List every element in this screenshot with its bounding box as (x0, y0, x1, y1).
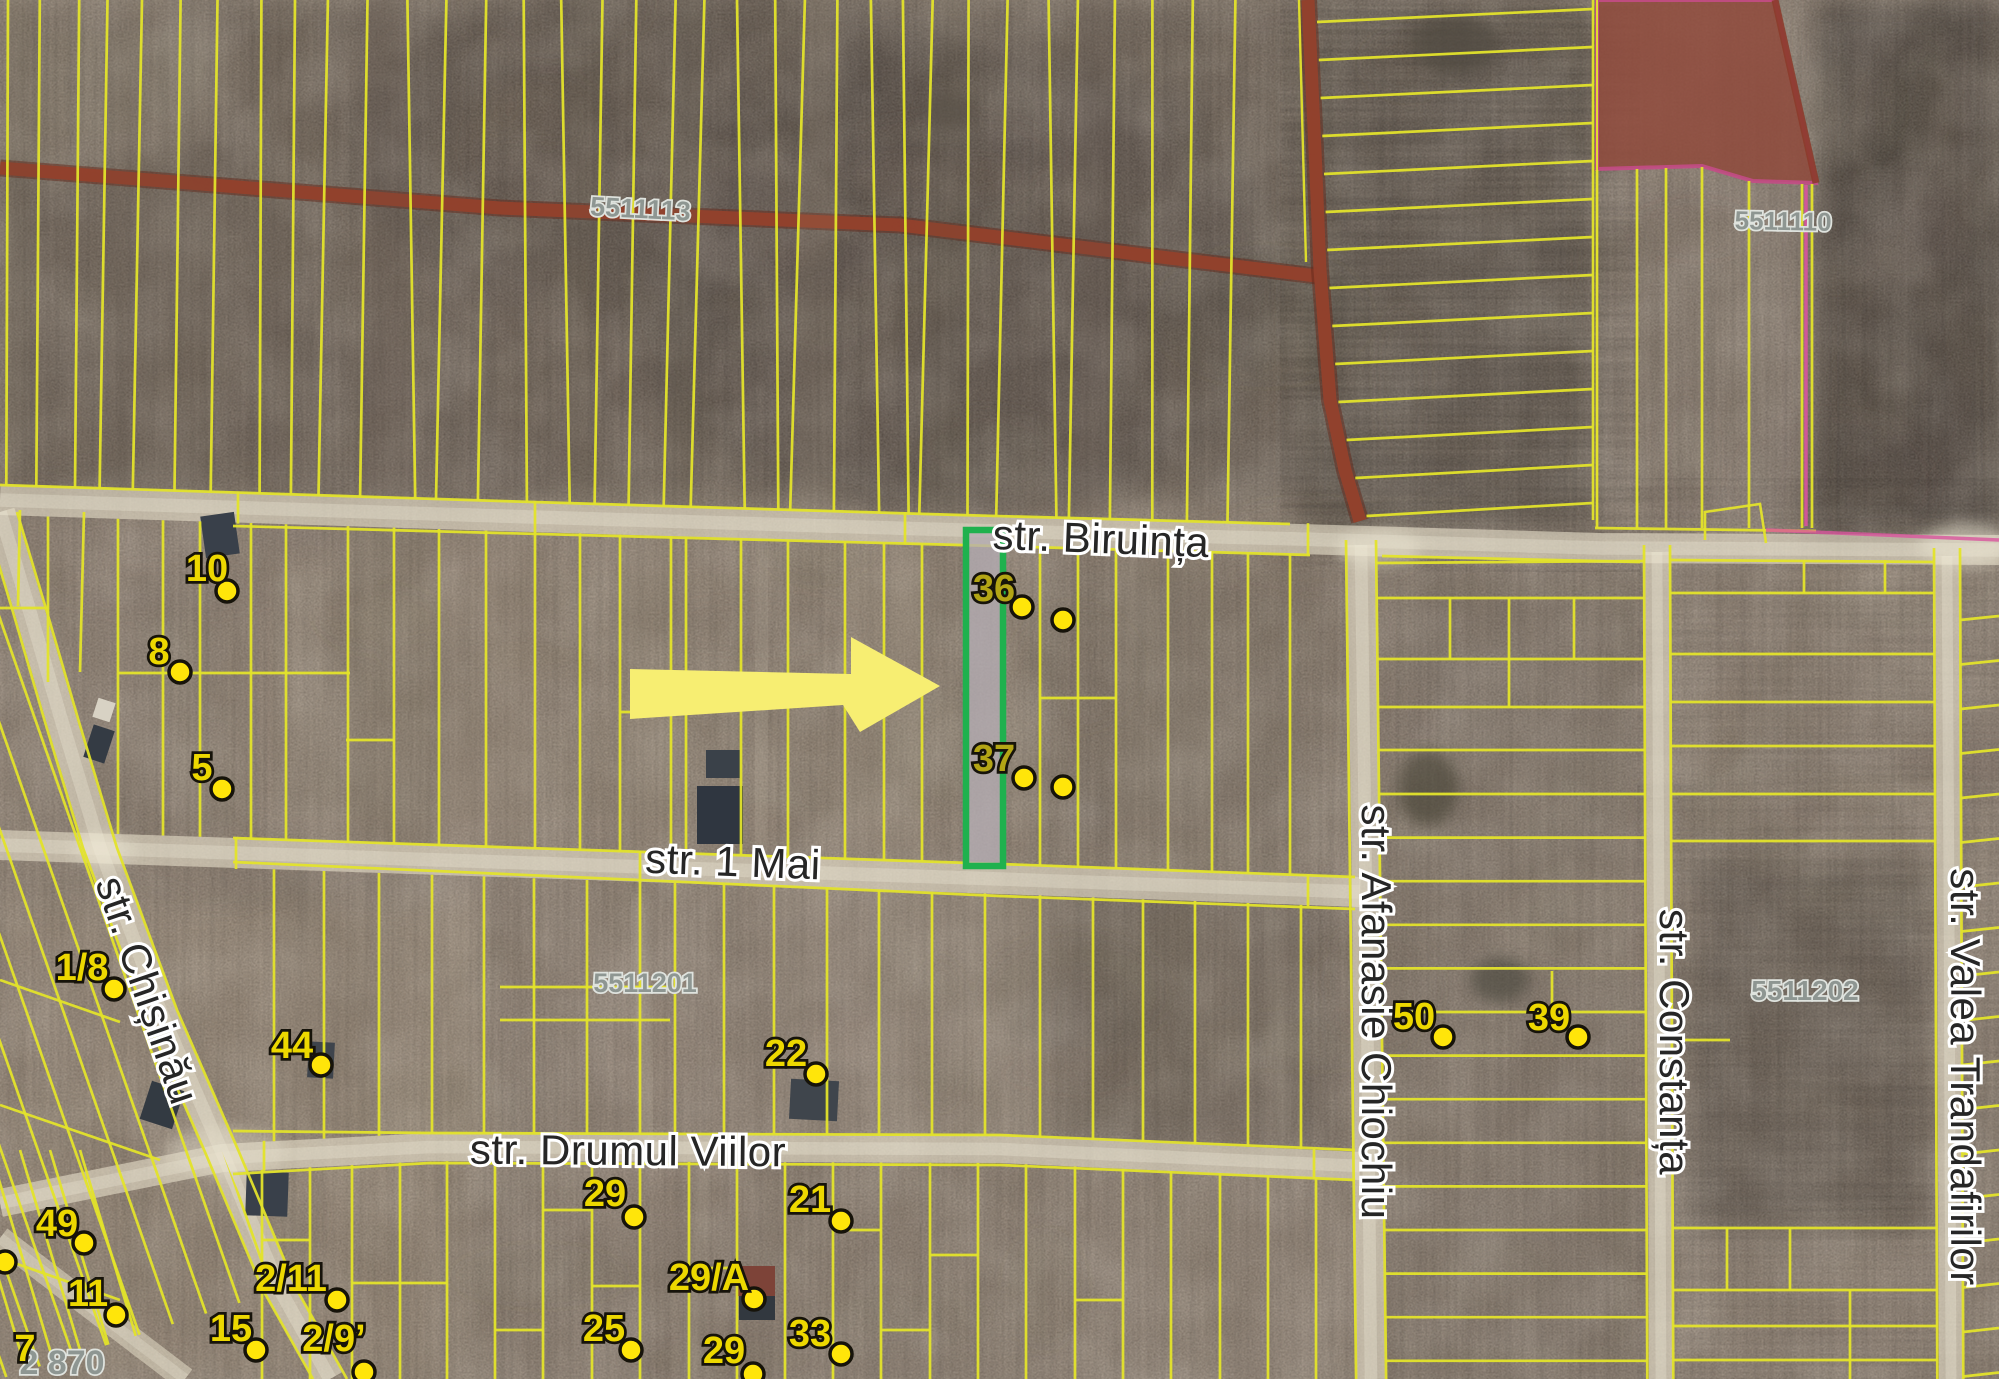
svg-text:5511202: 5511202 (1751, 975, 1858, 1006)
svg-text:39: 39 (1528, 997, 1570, 1039)
svg-text:21: 21 (789, 1179, 831, 1221)
svg-text:1/8: 1/8 (56, 947, 109, 989)
svg-text:5511201: 5511201 (593, 968, 697, 998)
svg-text:5: 5 (191, 747, 212, 789)
svg-text:29/A: 29/A (669, 1257, 749, 1299)
svg-text:36: 36 (973, 568, 1015, 610)
svg-text:15: 15 (210, 1308, 252, 1350)
svg-text:7: 7 (14, 1328, 35, 1370)
svg-text:37: 37 (973, 738, 1015, 780)
svg-text:33: 33 (789, 1313, 831, 1355)
svg-text:22: 22 (765, 1033, 807, 1075)
svg-text:str. Drumul Viilor: str. Drumul Viilor (470, 1126, 787, 1176)
svg-text:2/9’: 2/9’ (302, 1318, 365, 1360)
svg-text:str. Biruința: str. Biruința (992, 511, 1210, 566)
svg-text:29: 29 (584, 1173, 626, 1215)
svg-text:50: 50 (1393, 996, 1435, 1038)
svg-text:49: 49 (36, 1203, 78, 1245)
svg-text:str. Constanța: str. Constanța (1651, 909, 1698, 1175)
svg-text:str. 1 Mai: str. 1 Mai (644, 835, 821, 889)
svg-text:11: 11 (68, 1273, 108, 1315)
svg-text:29: 29 (703, 1330, 745, 1372)
svg-text:str. Valea Trandafirilor: str. Valea Trandafirilor (1942, 868, 1989, 1285)
svg-text:10: 10 (186, 548, 228, 590)
svg-text:5511110: 5511110 (1734, 205, 1831, 237)
svg-text:5511113: 5511113 (589, 191, 691, 226)
svg-text:25: 25 (583, 1308, 625, 1350)
svg-text:8: 8 (148, 631, 169, 673)
svg-text:2/11: 2/11 (255, 1258, 327, 1300)
svg-text:44: 44 (271, 1025, 313, 1067)
